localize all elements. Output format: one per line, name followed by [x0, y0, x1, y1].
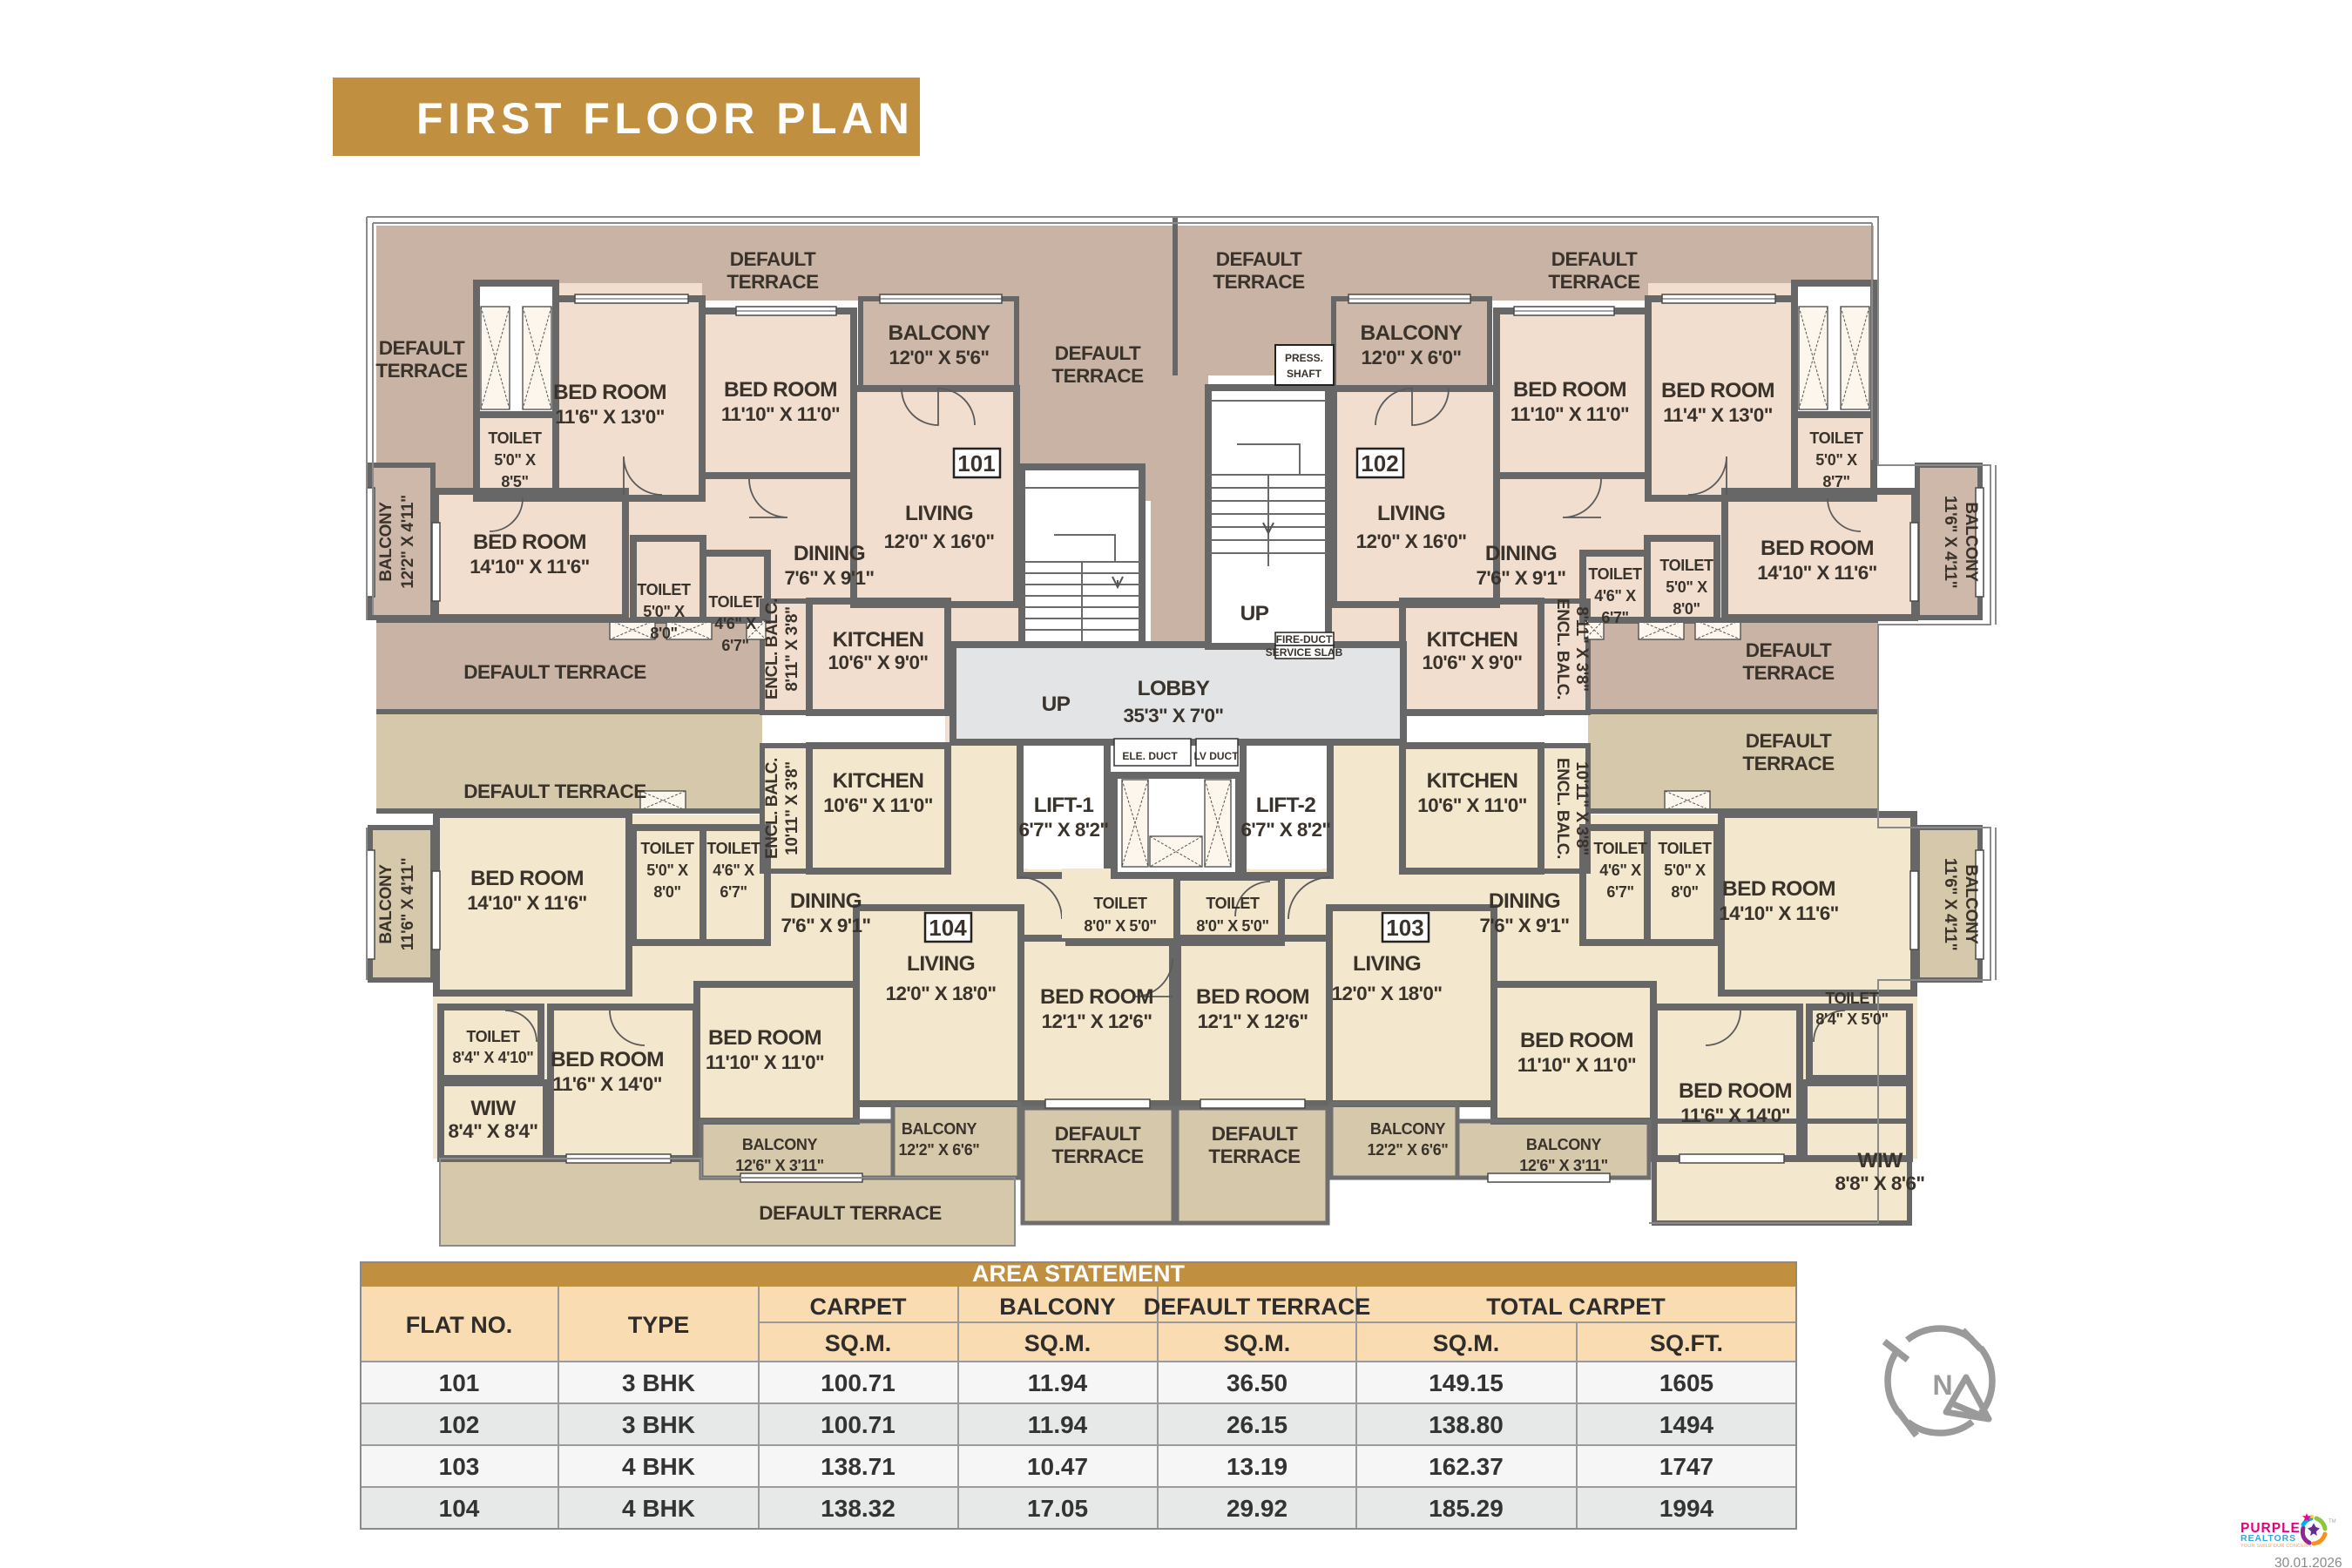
- svg-text:30.01.2026: 30.01.2026: [2274, 1556, 2342, 1568]
- svg-text:6'7": 6'7": [1601, 609, 1628, 626]
- svg-text:TOILET: TOILET: [1093, 895, 1147, 912]
- svg-text:11'6" X 4'11": 11'6" X 4'11": [1941, 496, 1959, 588]
- svg-text:8'11" X 3'8": 8'11" X 3'8": [783, 606, 801, 691]
- svg-text:BED ROOM: BED ROOM: [1761, 537, 1874, 560]
- svg-text:8'0": 8'0": [653, 883, 680, 901]
- svg-text:BALCONY: BALCONY: [742, 1136, 818, 1153]
- svg-text:138.71: 138.71: [821, 1453, 896, 1480]
- svg-text:TERRACE: TERRACE: [1742, 662, 1835, 684]
- svg-text:TOILET: TOILET: [1206, 895, 1260, 912]
- svg-text:149.15: 149.15: [1429, 1369, 1504, 1396]
- svg-text:10'11" X 3'8": 10'11" X 3'8": [783, 761, 801, 855]
- svg-text:TERRACE: TERRACE: [1051, 365, 1144, 387]
- svg-text:TOILET: TOILET: [1593, 840, 1647, 857]
- svg-text:DEFAULT: DEFAULT: [1551, 248, 1638, 270]
- svg-text:BALCONY: BALCONY: [889, 321, 990, 345]
- svg-text:11'6" X 14'0": 11'6" X 14'0": [1680, 1105, 1790, 1126]
- svg-text:101: 101: [957, 450, 995, 476]
- svg-text:11'6" X 13'0": 11'6" X 13'0": [555, 406, 665, 428]
- svg-text:LOBBY: LOBBY: [1138, 677, 1210, 700]
- svg-text:12'0" X 18'0": 12'0" X 18'0": [886, 983, 997, 1004]
- svg-text:DINING: DINING: [794, 542, 865, 565]
- svg-text:101: 101: [439, 1369, 480, 1396]
- svg-text:KITCHEN: KITCHEN: [833, 628, 924, 652]
- svg-text:DINING: DINING: [1485, 542, 1557, 565]
- svg-text:SHAFT: SHAFT: [1287, 368, 1322, 380]
- svg-text:KITCHEN: KITCHEN: [1427, 769, 1518, 793]
- svg-text:TERRACE: TERRACE: [375, 360, 468, 382]
- svg-text:TERRACE: TERRACE: [1208, 1146, 1301, 1167]
- svg-text:BALCONY: BALCONY: [1370, 1120, 1446, 1138]
- svg-text:10'11" X 3'8": 10'11" X 3'8": [1572, 761, 1591, 855]
- svg-text:BALCONY: BALCONY: [999, 1294, 1116, 1320]
- svg-text:BED ROOM: BED ROOM: [1722, 877, 1835, 901]
- svg-text:SQ.M.: SQ.M.: [825, 1330, 892, 1356]
- svg-text:17.05: 17.05: [1027, 1495, 1088, 1522]
- svg-text:LIVING: LIVING: [905, 502, 973, 525]
- svg-text:4'6" X: 4'6" X: [1594, 587, 1636, 605]
- svg-text:SQ.M.: SQ.M.: [1024, 1330, 1092, 1356]
- svg-text:12'0" X 16'0": 12'0" X 16'0": [1356, 531, 1467, 552]
- svg-text:5'0" X: 5'0" X: [646, 862, 688, 879]
- svg-text:6'7": 6'7": [721, 637, 748, 654]
- svg-text:BALCONY: BALCONY: [377, 864, 395, 944]
- svg-text:8'4" X 5'0": 8'4" X 5'0": [1815, 1010, 1888, 1028]
- svg-text:TM: TM: [2328, 1519, 2336, 1524]
- svg-text:100.71: 100.71: [821, 1411, 896, 1438]
- svg-text:11'10" X 11'0": 11'10" X 11'0": [1511, 403, 1629, 425]
- svg-text:TOILET: TOILET: [1825, 990, 1879, 1007]
- svg-text:TERRACE: TERRACE: [1213, 271, 1305, 293]
- svg-text:DINING: DINING: [790, 889, 862, 913]
- svg-text:29.92: 29.92: [1227, 1495, 1288, 1522]
- svg-text:5'0" X: 5'0" X: [494, 451, 536, 469]
- svg-text:ENCL. BALC.: ENCL. BALC.: [763, 598, 781, 700]
- svg-text:10'6" X 9'0": 10'6" X 9'0": [1423, 652, 1523, 673]
- svg-text:DEFAULT: DEFAULT: [1055, 1123, 1141, 1145]
- svg-text:12'1" X 12'6": 12'1" X 12'6": [1198, 1010, 1308, 1032]
- svg-text:36.50: 36.50: [1227, 1369, 1288, 1396]
- svg-text:TOILET: TOILET: [1659, 557, 1713, 574]
- svg-text:11'6" X 4'11": 11'6" X 4'11": [399, 858, 417, 950]
- svg-text:BED ROOM: BED ROOM: [1513, 378, 1626, 402]
- svg-text:8'5": 8'5": [501, 473, 528, 490]
- svg-text:BALCONY: BALCONY: [377, 502, 395, 582]
- svg-text:BALCONY: BALCONY: [1526, 1136, 1602, 1153]
- svg-text:14'10" X 11'6": 14'10" X 11'6": [467, 892, 587, 914]
- svg-text:LIVING: LIVING: [1377, 502, 1445, 525]
- svg-text:8'0": 8'0": [650, 625, 677, 642]
- svg-text:6'7" X 8'2": 6'7" X 8'2": [1019, 819, 1109, 841]
- svg-text:11'10" X 11'0": 11'10" X 11'0": [721, 403, 840, 425]
- svg-text:LIFT-1: LIFT-1: [1034, 794, 1094, 817]
- svg-text:BALCONY: BALCONY: [902, 1120, 977, 1138]
- svg-text:SQ.M.: SQ.M.: [1433, 1330, 1500, 1356]
- svg-text:5'0" X: 5'0" X: [1815, 451, 1857, 469]
- svg-text:8'0": 8'0": [1671, 883, 1698, 901]
- svg-text:1605: 1605: [1659, 1369, 1713, 1396]
- svg-text:KITCHEN: KITCHEN: [1427, 628, 1518, 652]
- svg-text:TERRACE: TERRACE: [1548, 271, 1640, 293]
- svg-text:8'0" X 5'0": 8'0" X 5'0": [1084, 917, 1156, 935]
- svg-text:11'4" X 13'0": 11'4" X 13'0": [1663, 404, 1773, 426]
- svg-text:PRESS.: PRESS.: [1285, 352, 1323, 364]
- svg-text:ELE. DUCT: ELE. DUCT: [1122, 750, 1178, 762]
- svg-text:11.94: 11.94: [1028, 1411, 1088, 1438]
- svg-text:8'7": 8'7": [1822, 473, 1849, 490]
- svg-text:TOTAL CARPET: TOTAL CARPET: [1486, 1294, 1666, 1320]
- svg-text:DEFAULT: DEFAULT: [1055, 342, 1141, 364]
- svg-text:8'4" X 4'10": 8'4" X 4'10": [453, 1049, 534, 1066]
- svg-text:DINING: DINING: [1489, 889, 1560, 913]
- svg-text:102: 102: [1361, 450, 1398, 476]
- svg-text:1494: 1494: [1659, 1411, 1714, 1438]
- svg-text:7'6" X 9'1": 7'6" X 9'1": [1480, 915, 1570, 936]
- svg-text:SQ.M.: SQ.M.: [1224, 1330, 1291, 1356]
- svg-text:10'6" X 11'0": 10'6" X 11'0": [823, 794, 933, 816]
- svg-text:TOILET: TOILET: [466, 1028, 520, 1045]
- svg-text:104: 104: [439, 1495, 480, 1522]
- svg-text:LIVING: LIVING: [907, 952, 975, 976]
- svg-text:1747: 1747: [1659, 1453, 1713, 1480]
- svg-text:BED ROOM: BED ROOM: [724, 378, 837, 402]
- svg-text:BED ROOM: BED ROOM: [553, 381, 666, 404]
- svg-text:LIVING: LIVING: [1353, 952, 1421, 976]
- svg-text:12'2" X 4'11": 12'2" X 4'11": [399, 495, 417, 588]
- svg-text:BED ROOM: BED ROOM: [1661, 379, 1774, 402]
- svg-text:5'0" X: 5'0" X: [1666, 578, 1707, 596]
- svg-text:DEFAULT TERRACE: DEFAULT TERRACE: [1144, 1294, 1371, 1320]
- svg-text:BED ROOM: BED ROOM: [470, 867, 584, 890]
- svg-text:BALCONY: BALCONY: [1361, 321, 1463, 345]
- svg-text:103: 103: [1386, 915, 1423, 941]
- svg-text:TOILET: TOILET: [1809, 429, 1863, 447]
- svg-text:3 BHK: 3 BHK: [622, 1411, 695, 1438]
- svg-text:7'6" X 9'1": 7'6" X 9'1": [1477, 567, 1566, 589]
- svg-text:KITCHEN: KITCHEN: [833, 769, 924, 793]
- svg-text:12'0" X 18'0": 12'0" X 18'0": [1332, 983, 1443, 1004]
- svg-text:8'0": 8'0": [1673, 600, 1700, 618]
- svg-text:7'6" X 9'1": 7'6" X 9'1": [781, 915, 871, 936]
- svg-text:LIFT-2: LIFT-2: [1256, 794, 1316, 817]
- svg-text:35'3" X 7'0": 35'3" X 7'0": [1124, 705, 1224, 727]
- svg-text:DEFAULT: DEFAULT: [1216, 248, 1302, 270]
- svg-text:12'6" X 3'11": 12'6" X 3'11": [1519, 1157, 1608, 1174]
- svg-text:TOILET: TOILET: [1588, 565, 1642, 583]
- svg-text:14'10" X 11'6": 14'10" X 11'6": [1757, 562, 1877, 584]
- svg-text:12'6" X 3'11": 12'6" X 3'11": [735, 1157, 824, 1174]
- svg-text:11'10" X 11'0": 11'10" X 11'0": [706, 1051, 824, 1073]
- svg-text:14'10" X 11'6": 14'10" X 11'6": [470, 556, 590, 578]
- svg-text:DEFAULT TERRACE: DEFAULT TERRACE: [759, 1202, 942, 1224]
- svg-text:TOILET: TOILET: [637, 581, 691, 598]
- svg-text:ENCL. BALC.: ENCL. BALC.: [763, 758, 781, 859]
- svg-text:LV DUCT: LV DUCT: [1193, 750, 1239, 762]
- svg-text:10.47: 10.47: [1027, 1453, 1088, 1480]
- svg-text:BALCONY: BALCONY: [1962, 502, 1980, 582]
- svg-text:ENCL. BALC.: ENCL. BALC.: [1553, 758, 1571, 859]
- svg-text:7'6" X 9'1": 7'6" X 9'1": [785, 567, 875, 589]
- svg-text:26.15: 26.15: [1227, 1411, 1288, 1438]
- svg-text:12'2" X 6'6": 12'2" X 6'6": [1368, 1141, 1449, 1159]
- svg-text:TERRACE: TERRACE: [727, 271, 819, 293]
- svg-text:SERVICE SLAB: SERVICE SLAB: [1266, 646, 1343, 659]
- svg-text:14'10" X 11'6": 14'10" X 11'6": [1719, 902, 1839, 924]
- svg-text:8'8" X 8'6": 8'8" X 8'6": [1835, 1173, 1925, 1194]
- svg-text:5'0" X: 5'0" X: [643, 603, 685, 620]
- svg-text:TERRACE: TERRACE: [1742, 753, 1835, 774]
- svg-text:YOUR SMILE OUR CONCERN: YOUR SMILE OUR CONCERN: [2240, 1544, 2311, 1549]
- svg-text:6'7": 6'7": [1606, 883, 1633, 901]
- svg-text:4 BHK: 4 BHK: [622, 1453, 695, 1480]
- svg-text:5'0" X: 5'0" X: [1664, 862, 1706, 879]
- svg-text:10'6" X 11'0": 10'6" X 11'0": [1417, 794, 1527, 816]
- svg-text:11'6" X 14'0": 11'6" X 14'0": [552, 1073, 662, 1095]
- svg-text:BED ROOM: BED ROOM: [1520, 1029, 1633, 1052]
- svg-text:BALCONY: BALCONY: [1962, 864, 1980, 944]
- svg-text:8'0" X 5'0": 8'0" X 5'0": [1196, 917, 1268, 935]
- svg-text:FIRE-DUCT: FIRE-DUCT: [1276, 633, 1333, 645]
- svg-text:CARPET: CARPET: [809, 1294, 907, 1320]
- svg-text:6'7" X 8'2": 6'7" X 8'2": [1241, 819, 1331, 841]
- svg-text:3 BHK: 3 BHK: [622, 1369, 695, 1396]
- svg-text:FIRST FLOOR PLAN: FIRST FLOOR PLAN: [416, 94, 914, 143]
- svg-text:BED ROOM: BED ROOM: [1679, 1079, 1792, 1103]
- svg-text:11'6" X 4'11": 11'6" X 4'11": [1941, 858, 1959, 950]
- svg-text:BED ROOM: BED ROOM: [1040, 985, 1153, 1009]
- svg-text:BED ROOM: BED ROOM: [708, 1026, 821, 1050]
- svg-text:WIW: WIW: [1857, 1149, 1903, 1173]
- svg-text:6'7": 6'7": [720, 883, 747, 901]
- svg-text:12'2" X 6'6": 12'2" X 6'6": [899, 1141, 980, 1159]
- svg-text:4'6" X: 4'6" X: [1599, 862, 1641, 879]
- svg-text:TYPE: TYPE: [628, 1312, 690, 1338]
- svg-text:103: 103: [439, 1453, 480, 1480]
- svg-text:WIW: WIW: [470, 1097, 517, 1120]
- svg-text:12'1" X 12'6": 12'1" X 12'6": [1042, 1010, 1152, 1032]
- svg-text:DEFAULT TERRACE: DEFAULT TERRACE: [463, 661, 646, 683]
- svg-text:DEFAULT: DEFAULT: [1746, 730, 1832, 752]
- svg-text:4 BHK: 4 BHK: [622, 1495, 695, 1522]
- svg-text:4'6" X: 4'6" X: [713, 862, 754, 879]
- svg-text:AREA STATEMENT: AREA STATEMENT: [972, 1260, 1185, 1287]
- svg-text:BED ROOM: BED ROOM: [473, 531, 586, 554]
- svg-text:8'11" X 3'8": 8'11" X 3'8": [1572, 606, 1591, 691]
- svg-text:12'0" X 6'0": 12'0" X 6'0": [1362, 347, 1462, 368]
- svg-text:DEFAULT: DEFAULT: [730, 248, 816, 270]
- svg-text:TOILET: TOILET: [706, 840, 760, 857]
- svg-text:12'0" X 5'6": 12'0" X 5'6": [889, 347, 990, 368]
- svg-text:DEFAULT TERRACE: DEFAULT TERRACE: [463, 781, 646, 802]
- svg-text:N: N: [1932, 1369, 1952, 1401]
- svg-text:BED ROOM: BED ROOM: [1196, 985, 1309, 1009]
- svg-text:TERRACE: TERRACE: [1051, 1146, 1144, 1167]
- svg-text:1994: 1994: [1659, 1495, 1714, 1522]
- svg-text:REALTORS: REALTORS: [2240, 1533, 2296, 1544]
- svg-text:13.19: 13.19: [1227, 1453, 1288, 1480]
- svg-text:DEFAULT: DEFAULT: [1212, 1123, 1298, 1145]
- svg-text:138.32: 138.32: [821, 1495, 896, 1522]
- svg-text:138.80: 138.80: [1429, 1411, 1504, 1438]
- svg-text:10'6" X 9'0": 10'6" X 9'0": [828, 652, 929, 673]
- svg-text:162.37: 162.37: [1429, 1453, 1504, 1480]
- svg-text:DEFAULT: DEFAULT: [1746, 639, 1832, 661]
- svg-text:11.94: 11.94: [1028, 1369, 1088, 1396]
- svg-text:BED ROOM: BED ROOM: [551, 1048, 664, 1071]
- svg-text:SQ.FT.: SQ.FT.: [1650, 1330, 1723, 1356]
- svg-text:11'10" X 11'0": 11'10" X 11'0": [1517, 1054, 1636, 1076]
- svg-text:100.71: 100.71: [821, 1369, 896, 1396]
- svg-text:TOILET: TOILET: [1658, 840, 1712, 857]
- svg-text:4'6" X: 4'6" X: [714, 615, 756, 632]
- svg-text:UP: UP: [1240, 602, 1269, 625]
- svg-text:TOILET: TOILET: [488, 429, 542, 447]
- svg-text:UP: UP: [1042, 693, 1071, 716]
- svg-text:104: 104: [929, 915, 967, 941]
- svg-text:TOILET: TOILET: [708, 593, 762, 611]
- svg-text:102: 102: [439, 1411, 480, 1438]
- svg-text:8'4" X 8'4": 8'4" X 8'4": [449, 1120, 538, 1142]
- svg-text:TOILET: TOILET: [640, 840, 694, 857]
- svg-text:12'0" X 16'0": 12'0" X 16'0": [884, 531, 995, 552]
- svg-text:FLAT NO.: FLAT NO.: [406, 1312, 512, 1338]
- svg-text:DEFAULT: DEFAULT: [379, 337, 465, 359]
- svg-text:ENCL. BALC.: ENCL. BALC.: [1553, 598, 1571, 700]
- svg-text:185.29: 185.29: [1429, 1495, 1504, 1522]
